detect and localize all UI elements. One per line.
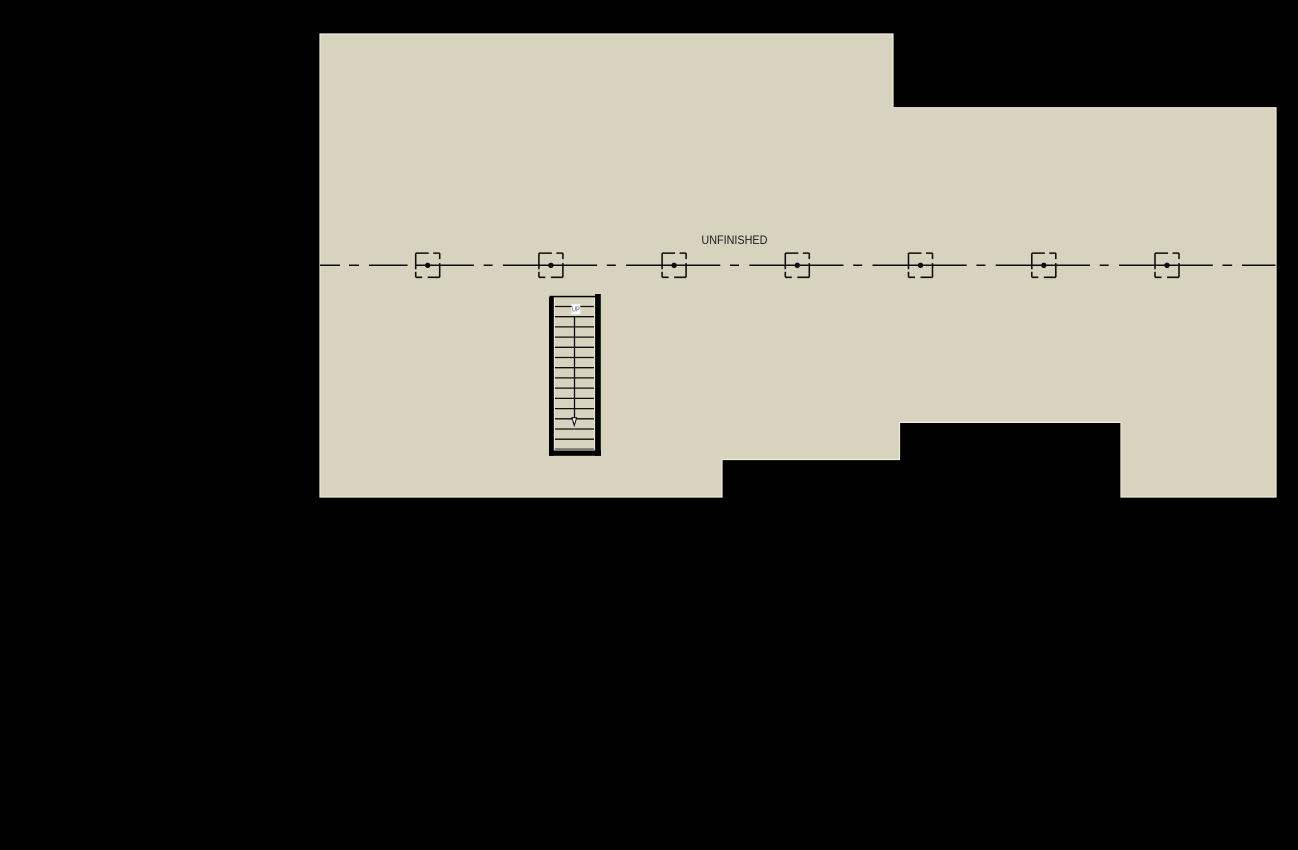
svg-text:UP: UP [572,306,580,313]
svg-text:UNFINISHED: UNFINISHED [701,233,767,247]
